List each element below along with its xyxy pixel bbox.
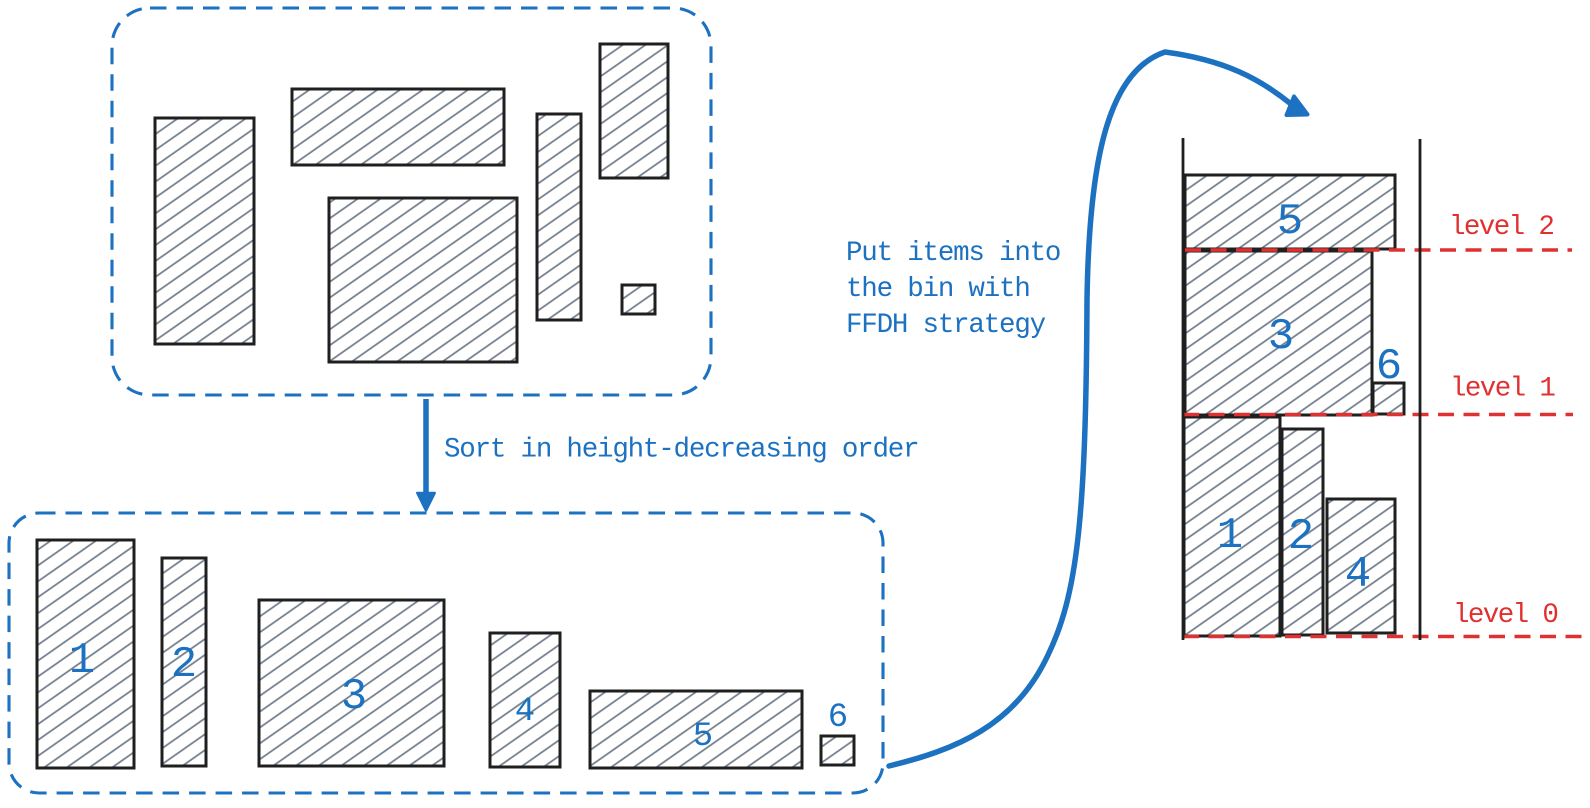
svg-text:4: 4 — [1345, 550, 1371, 600]
svg-text:3: 3 — [341, 672, 367, 722]
svg-text:level 1: level 1 — [1450, 374, 1555, 405]
svg-text:Sort in height-decreasing orde: Sort in height-decreasing order — [444, 435, 918, 466]
svg-text:Put items into: Put items into — [846, 238, 1060, 269]
svg-text:FFDH strategy: FFDH strategy — [846, 310, 1046, 341]
svg-text:level 0: level 0 — [1453, 600, 1557, 631]
svg-text:level 2: level 2 — [1449, 212, 1553, 243]
svg-text:1: 1 — [1217, 511, 1243, 561]
svg-text:6: 6 — [828, 699, 848, 737]
svg-text:5: 5 — [693, 718, 713, 756]
svg-text:the bin with: the bin with — [846, 274, 1030, 305]
svg-text:6: 6 — [1376, 342, 1402, 392]
svg-text:2: 2 — [1288, 512, 1314, 562]
svg-text:4: 4 — [515, 693, 535, 731]
svg-text:3: 3 — [1268, 312, 1294, 362]
svg-text:5: 5 — [1277, 197, 1303, 247]
svg-text:1: 1 — [69, 636, 95, 686]
svg-text:2: 2 — [171, 640, 197, 690]
